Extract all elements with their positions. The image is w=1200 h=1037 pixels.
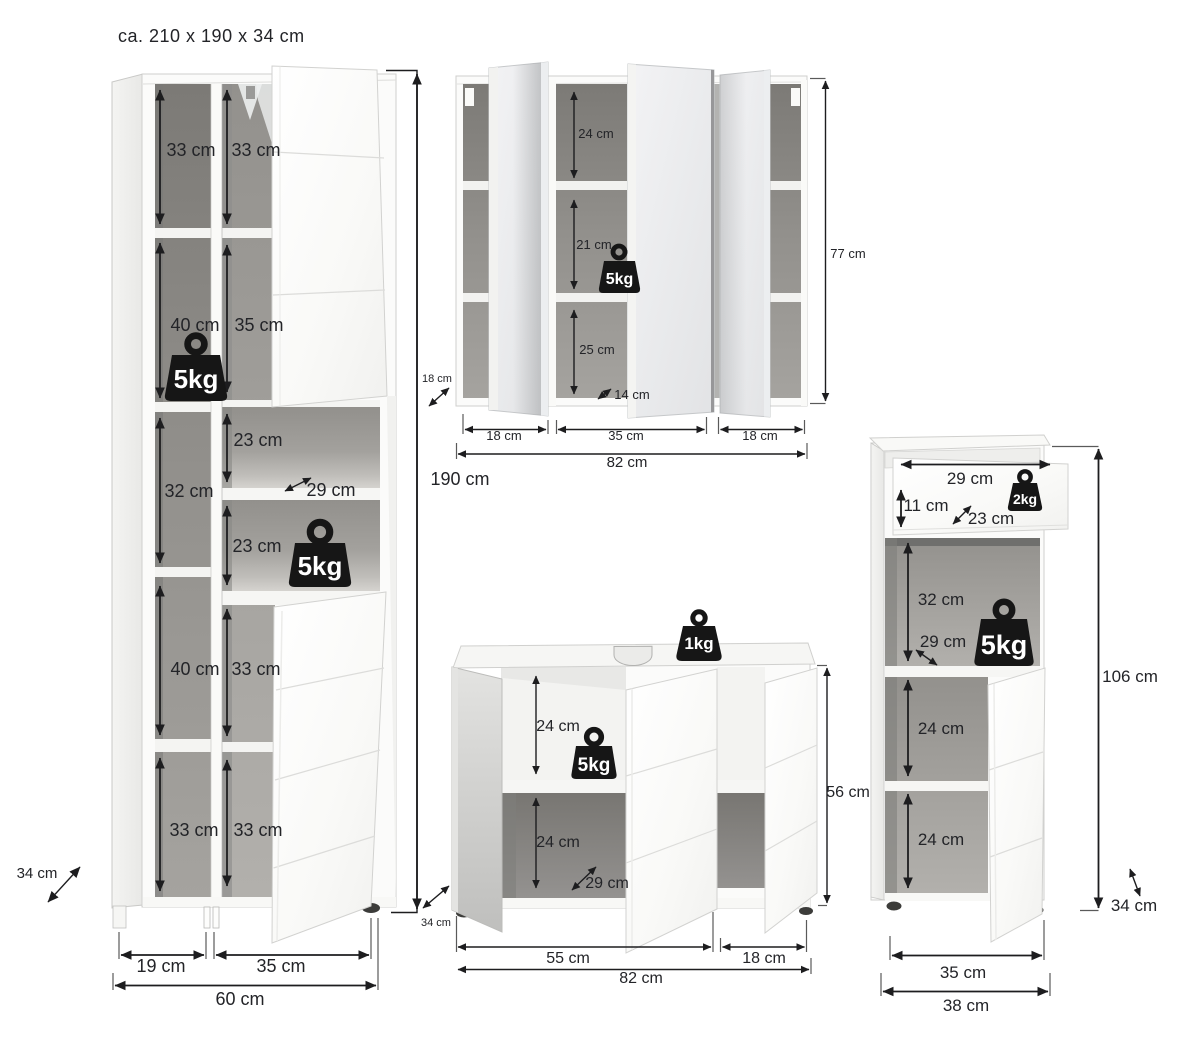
svg-text:32 cm: 32 cm <box>164 481 213 501</box>
svg-text:77 cm: 77 cm <box>830 246 865 261</box>
svg-text:38 cm: 38 cm <box>943 996 989 1015</box>
svg-text:18 cm: 18 cm <box>742 950 786 967</box>
svg-text:40 cm: 40 cm <box>170 659 219 679</box>
svg-text:5kg: 5kg <box>578 755 611 776</box>
svg-text:1kg: 1kg <box>684 634 713 653</box>
svg-text:32 cm: 32 cm <box>918 590 964 609</box>
svg-text:56 cm: 56 cm <box>826 784 870 801</box>
svg-text:29 cm: 29 cm <box>585 875 629 892</box>
svg-text:35 cm: 35 cm <box>256 956 305 976</box>
svg-text:14 cm: 14 cm <box>614 387 649 402</box>
svg-text:55 cm: 55 cm <box>546 950 590 967</box>
svg-text:21 cm: 21 cm <box>576 237 611 252</box>
svg-text:23 cm: 23 cm <box>233 430 282 450</box>
svg-text:82 cm: 82 cm <box>619 970 663 987</box>
svg-text:25 cm: 25 cm <box>579 342 614 357</box>
svg-text:33 cm: 33 cm <box>231 659 280 679</box>
svg-text:33 cm: 33 cm <box>231 140 280 160</box>
svg-text:18 cm: 18 cm <box>742 428 777 443</box>
svg-text:34 cm: 34 cm <box>17 865 58 882</box>
svg-text:29 cm: 29 cm <box>920 632 966 651</box>
svg-text:19 cm: 19 cm <box>136 956 185 976</box>
svg-text:18 cm: 18 cm <box>422 373 452 385</box>
svg-text:34 cm: 34 cm <box>1111 896 1157 915</box>
svg-text:24 cm: 24 cm <box>536 834 580 851</box>
svg-text:106 cm: 106 cm <box>1102 667 1158 686</box>
svg-text:24 cm: 24 cm <box>918 830 964 849</box>
svg-text:5kg: 5kg <box>174 364 219 394</box>
svg-text:23 cm: 23 cm <box>232 536 281 556</box>
svg-text:35 cm: 35 cm <box>234 315 283 335</box>
svg-text:24 cm: 24 cm <box>536 718 580 735</box>
svg-text:35 cm: 35 cm <box>608 428 643 443</box>
svg-text:35 cm: 35 cm <box>940 963 986 982</box>
svg-text:29 cm: 29 cm <box>306 480 355 500</box>
svg-text:29 cm: 29 cm <box>947 469 993 488</box>
svg-text:40 cm: 40 cm <box>170 315 219 335</box>
svg-text:24 cm: 24 cm <box>918 719 964 738</box>
svg-text:190 cm: 190 cm <box>430 469 489 489</box>
svg-text:33 cm: 33 cm <box>166 140 215 160</box>
svg-text:33 cm: 33 cm <box>233 820 282 840</box>
svg-text:82 cm: 82 cm <box>607 454 648 471</box>
svg-text:24 cm: 24 cm <box>578 126 613 141</box>
svg-text:5kg: 5kg <box>606 271 634 288</box>
svg-text:ca. 210 x 190 x 34 cm: ca. 210 x 190 x 34 cm <box>118 26 305 46</box>
svg-text:60 cm: 60 cm <box>215 989 264 1009</box>
svg-text:5kg: 5kg <box>298 551 343 581</box>
svg-text:11 cm: 11 cm <box>903 496 948 515</box>
svg-text:2kg: 2kg <box>1013 491 1037 507</box>
svg-text:18 cm: 18 cm <box>486 428 521 443</box>
svg-text:34 cm: 34 cm <box>421 917 451 929</box>
svg-text:23 cm: 23 cm <box>968 509 1014 528</box>
svg-text:33 cm: 33 cm <box>169 820 218 840</box>
svg-text:5kg: 5kg <box>981 630 1028 660</box>
